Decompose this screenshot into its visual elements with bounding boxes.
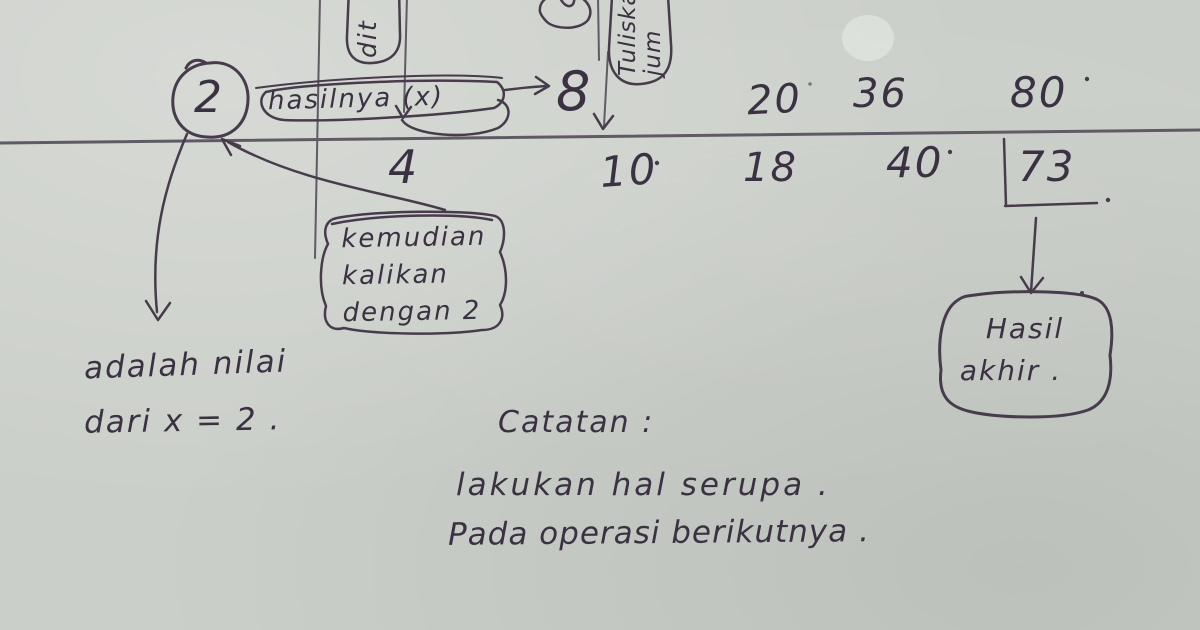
x-note-line2: dari x = 2 .: [84, 402, 282, 440]
result-label: hasilnya (x): [268, 83, 445, 116]
top-value-1: 8: [556, 62, 592, 121]
vertical-line-right: [598, 0, 608, 126]
vertical-line-left: [315, 0, 320, 258]
partial-circle-top: [540, 0, 590, 28]
handwritten-note-photo: 2 hasilnya (x) 8 20 36 80 4 10 18 40 73 …: [0, 0, 1200, 630]
final-note-line2: akhir .: [936, 350, 1086, 392]
ink-dot: [808, 82, 812, 86]
ink-dot: [1080, 291, 1084, 295]
arrow-to-final-result-icon: [1021, 218, 1043, 293]
paper-smudge: [842, 15, 894, 61]
ink-dot: [948, 150, 952, 154]
bottom-value-4: 40: [886, 140, 943, 186]
caption-line1: lakukan hal serupa .: [456, 468, 831, 502]
caption-line2: Pada operasi berikutnya .: [448, 514, 870, 552]
top-value-3: 36: [853, 72, 908, 116]
rotated-label-left: dit: [354, 19, 382, 58]
bottom-value-5: 73: [1018, 144, 1075, 190]
ink-dot: [1106, 198, 1110, 202]
ink-dot: [1085, 77, 1089, 81]
multiply-note-line2: kalikan: [342, 256, 488, 296]
bottom-value-3: 18: [743, 146, 798, 190]
multiply-note-line1: kemudian: [341, 219, 487, 259]
rotated-label-right-line2: jum: [641, 0, 666, 76]
multiply-note-line3: dengan 2: [342, 293, 488, 333]
caption-heading: Catatan :: [498, 406, 654, 439]
curved-arrow-to-x-note: [146, 134, 187, 320]
top-value-2: 20: [746, 77, 803, 124]
bottom-value-1: 4: [388, 142, 419, 193]
bottom-value-2: 10: [598, 146, 659, 196]
arrow-to-8-icon: [505, 77, 549, 94]
x-note-line1: adalah nilai: [83, 344, 287, 385]
final-note-line1: Hasil: [950, 308, 1100, 350]
circled-multiplier-value: 2: [194, 74, 224, 122]
rotated-label-right-line1: Tuliskan: [616, 0, 641, 76]
top-value-4: 80: [1010, 70, 1067, 116]
